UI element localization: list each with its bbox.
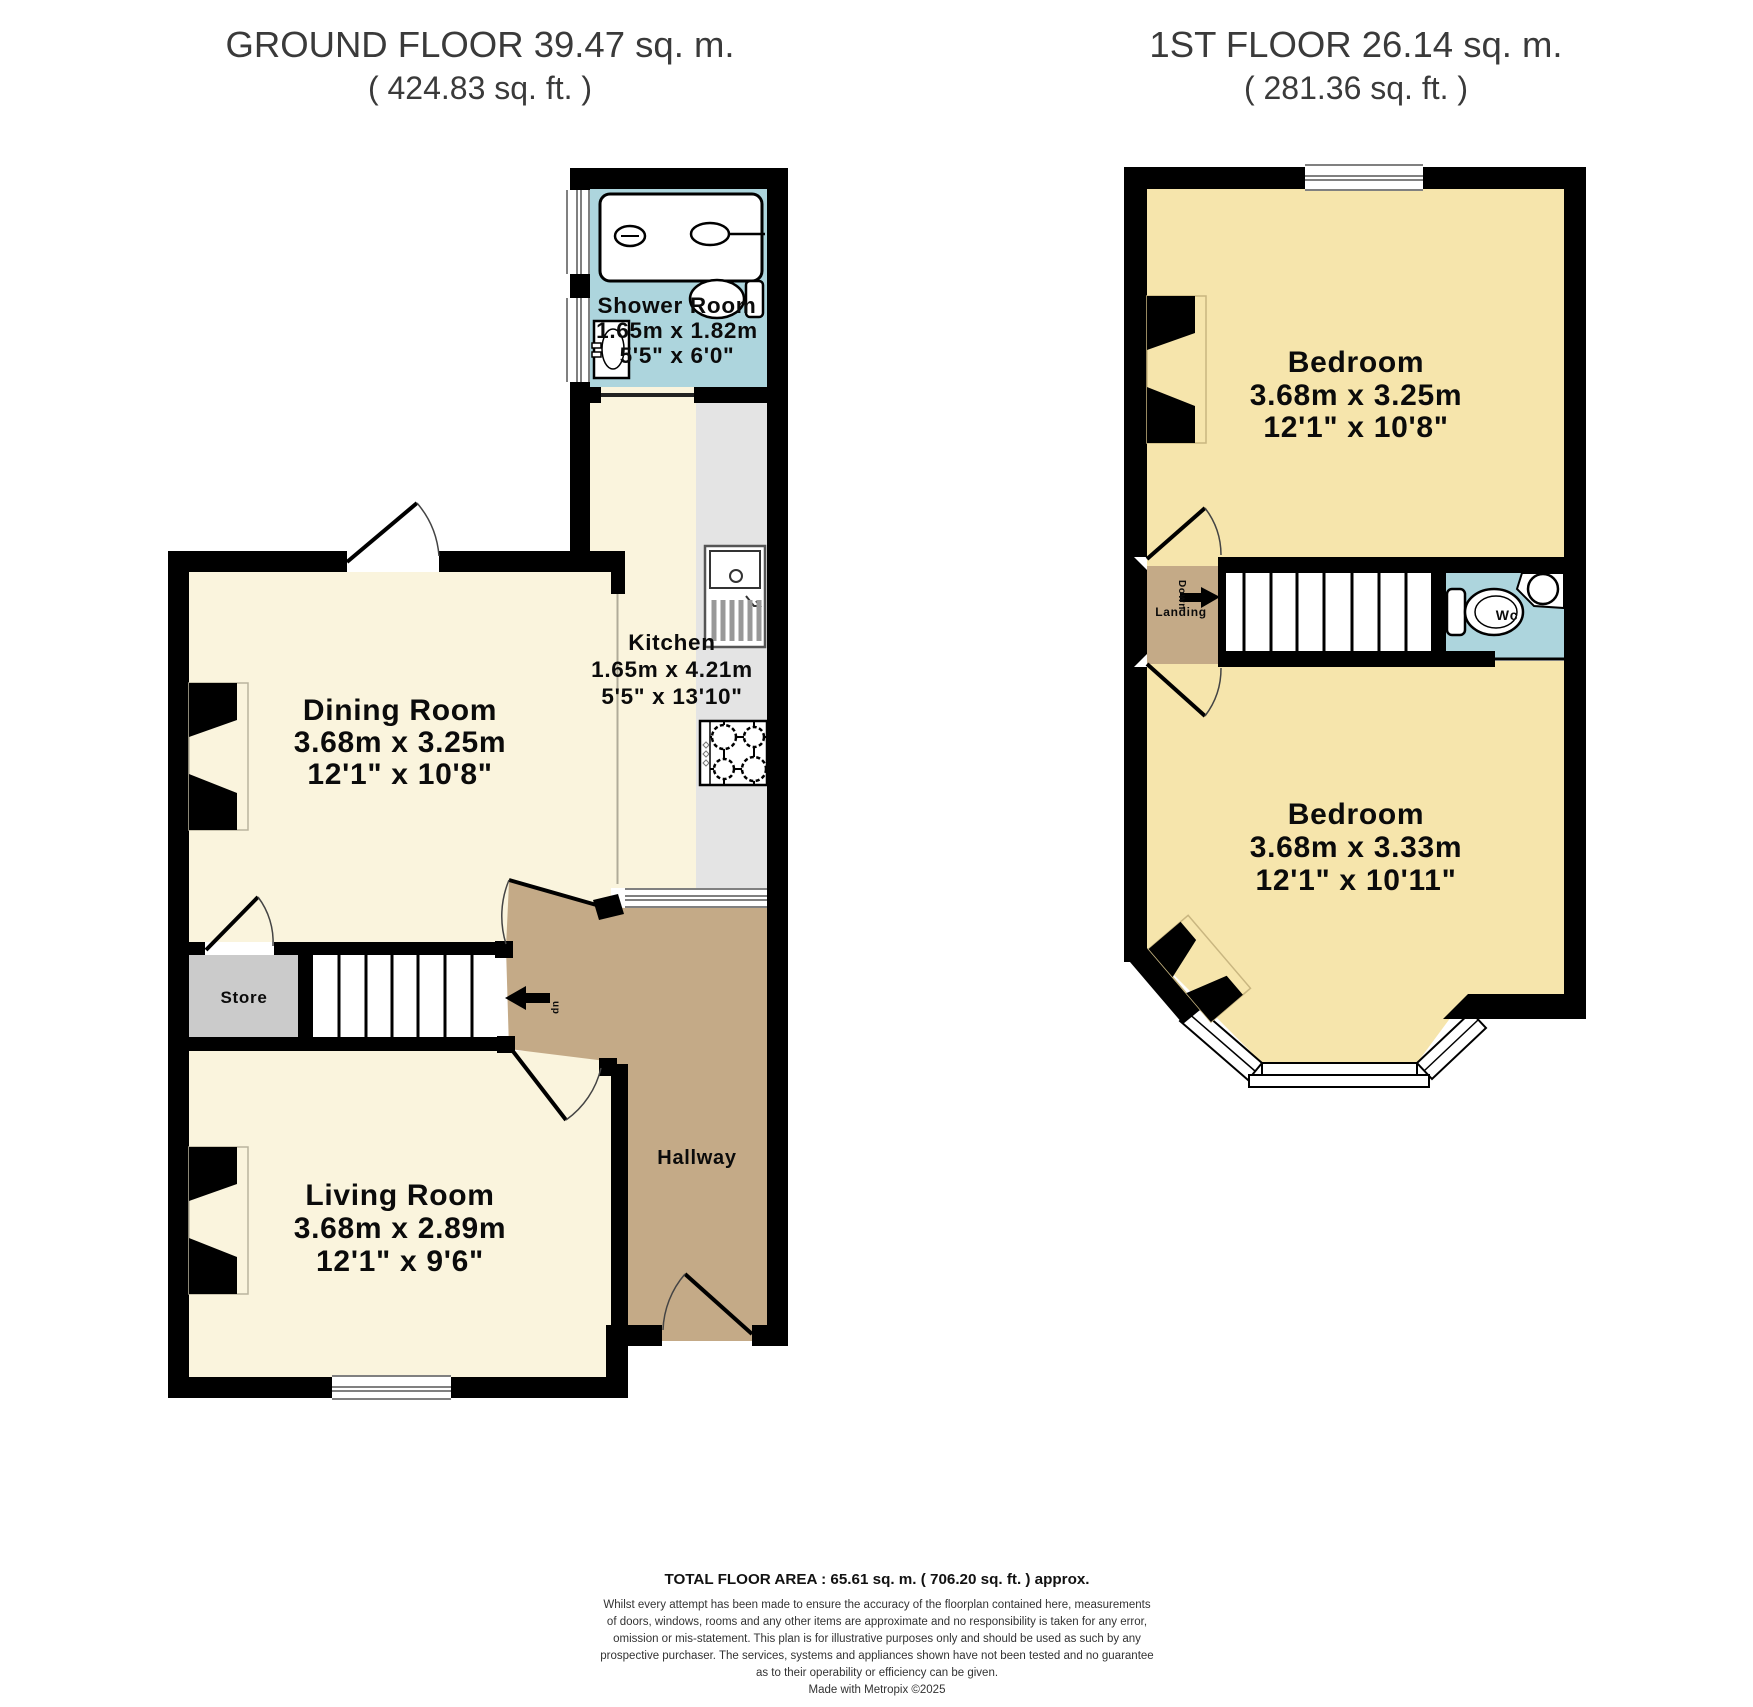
svg-text:12'1" x 10'11": 12'1" x 10'11" xyxy=(1255,864,1456,897)
svg-text:5'5" x 13'10": 5'5" x 13'10" xyxy=(601,684,742,709)
svg-text:Store: Store xyxy=(221,988,268,1007)
svg-text:( 424.83 sq. ft. ): ( 424.83 sq. ft. ) xyxy=(368,70,592,106)
svg-text:GROUND FLOOR 39.47 sq. m.: GROUND FLOOR 39.47 sq. m. xyxy=(225,24,734,65)
svg-text:( 281.36 sq. ft. ): ( 281.36 sq. ft. ) xyxy=(1244,70,1468,106)
svg-text:Shower Room: Shower Room xyxy=(598,293,757,318)
svg-text:1.65m x 1.82m: 1.65m x 1.82m xyxy=(596,318,758,343)
svg-text:Whilst every attempt has been: Whilst every attempt has been made to en… xyxy=(603,1599,1150,1611)
svg-text:up: up xyxy=(550,1001,561,1015)
svg-text:3.68m x 3.25m: 3.68m x 3.25m xyxy=(1250,379,1463,412)
svg-text:as to their operability or eff: as to their operability or efficiency ca… xyxy=(756,1667,998,1679)
svg-text:Bedroom: Bedroom xyxy=(1288,798,1425,831)
svg-text:Wc: Wc xyxy=(1496,607,1518,623)
svg-text:3.68m x 3.25m: 3.68m x 3.25m xyxy=(294,726,507,759)
svg-text:1.65m x 4.21m: 1.65m x 4.21m xyxy=(591,657,753,682)
svg-text:12'1" x 10'8": 12'1" x 10'8" xyxy=(307,758,492,791)
svg-text:12'1" x 10'8": 12'1" x 10'8" xyxy=(1263,411,1448,444)
svg-text:Dining Room: Dining Room xyxy=(303,694,497,727)
svg-text:of doors, windows, rooms and a: of doors, windows, rooms and any other i… xyxy=(607,1616,1147,1628)
svg-text:prospective purchaser. The ser: prospective purchaser. The services, sys… xyxy=(600,1650,1153,1662)
svg-text:3.68m x 3.33m: 3.68m x 3.33m xyxy=(1250,831,1463,864)
svg-text:Bedroom: Bedroom xyxy=(1288,346,1425,379)
svg-text:12'1" x 9'6": 12'1" x 9'6" xyxy=(316,1245,484,1278)
svg-text:Landing: Landing xyxy=(1155,605,1207,619)
svg-text:Kitchen: Kitchen xyxy=(628,630,715,655)
svg-text:Made with Metropix ©2025: Made with Metropix ©2025 xyxy=(809,1684,946,1696)
svg-text:TOTAL FLOOR AREA : 65.61 sq. m: TOTAL FLOOR AREA : 65.61 sq. m. ( 706.20… xyxy=(664,1571,1089,1588)
svg-text:5'5" x 6'0": 5'5" x 6'0" xyxy=(620,343,735,368)
svg-text:1ST FLOOR 26.14 sq. m.: 1ST FLOOR 26.14 sq. m. xyxy=(1149,24,1562,65)
svg-text:omission or mis-statement. Thi: omission or mis-statement. This plan is … xyxy=(613,1633,1141,1645)
svg-text:3.68m x 2.89m: 3.68m x 2.89m xyxy=(294,1212,507,1245)
svg-text:Hallway: Hallway xyxy=(657,1147,737,1169)
svg-text:Living Room: Living Room xyxy=(305,1179,494,1212)
